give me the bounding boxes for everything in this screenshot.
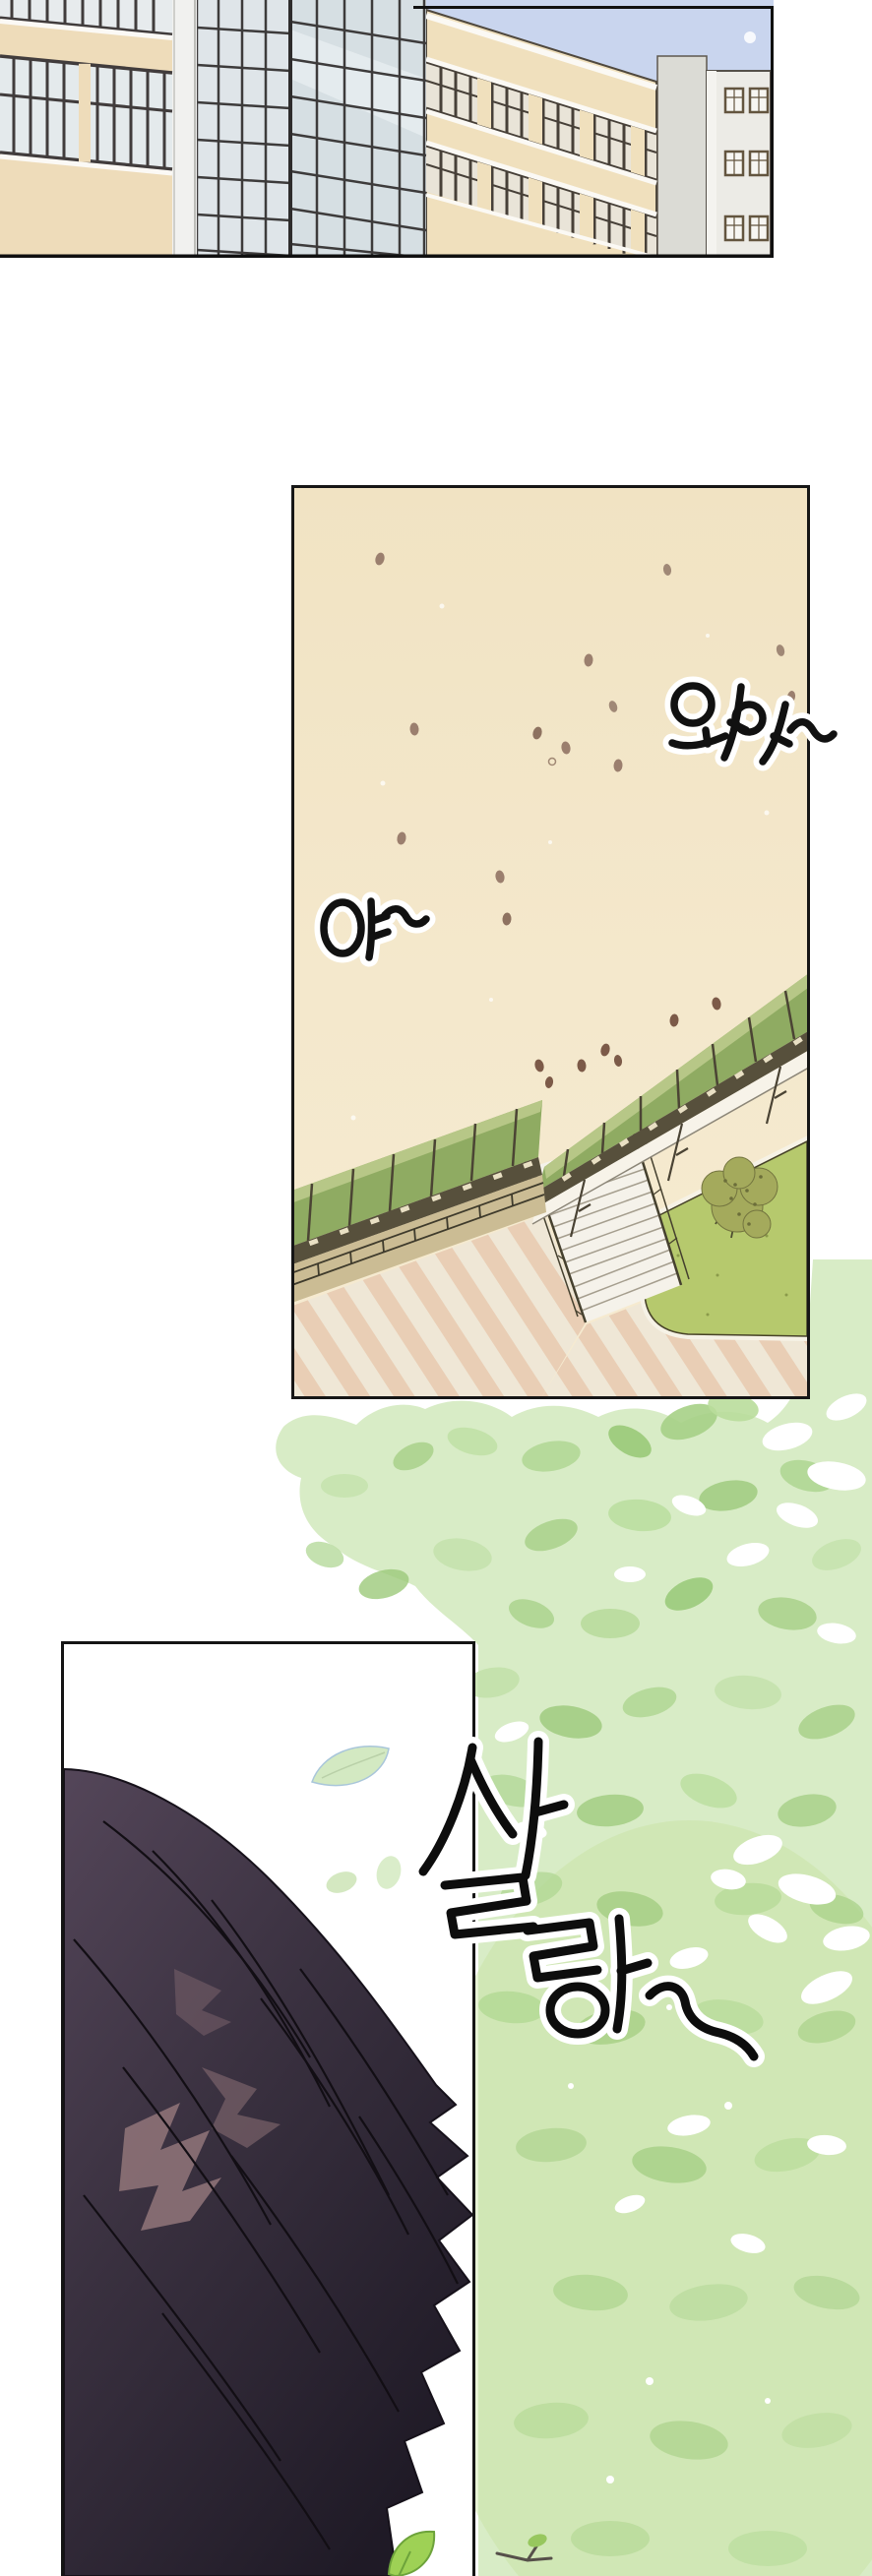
- panel-hair-closeup: [61, 1641, 475, 2576]
- cream-building-left: [0, 0, 172, 258]
- panel-buildings: [0, 0, 774, 258]
- panel-schoolyard: [291, 485, 810, 1399]
- page-root: 와아~ 야~ 살랑~: [0, 0, 872, 2576]
- panel1-right-border: [771, 6, 774, 258]
- falling-leaves: [374, 552, 796, 1089]
- buildings-scene: [0, 0, 774, 258]
- bottom-leaf: [389, 2532, 434, 2576]
- floating-leaves: [312, 1747, 405, 1897]
- panel1-bottom-border: [0, 255, 774, 259]
- white-building: [657, 56, 771, 258]
- glass-building: [197, 0, 426, 258]
- cloud-dot: [744, 31, 756, 43]
- hair: [64, 1769, 472, 2576]
- pilaster: [172, 0, 197, 258]
- panel1-top-border: [413, 6, 774, 9]
